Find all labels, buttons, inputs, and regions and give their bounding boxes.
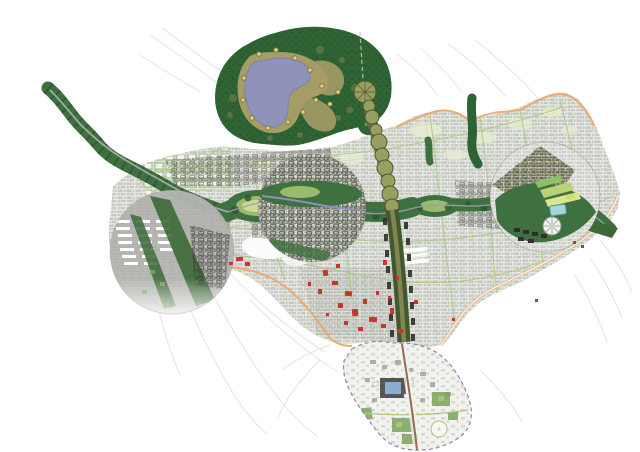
- radial-node: [354, 81, 376, 103]
- masterplan-image: [0, 0, 640, 452]
- stadium: [543, 217, 561, 235]
- south-round-plaza: [431, 421, 447, 437]
- southern-extension-district: [335, 335, 480, 452]
- center-district-circle: [258, 154, 366, 262]
- glass-building: [549, 204, 566, 216]
